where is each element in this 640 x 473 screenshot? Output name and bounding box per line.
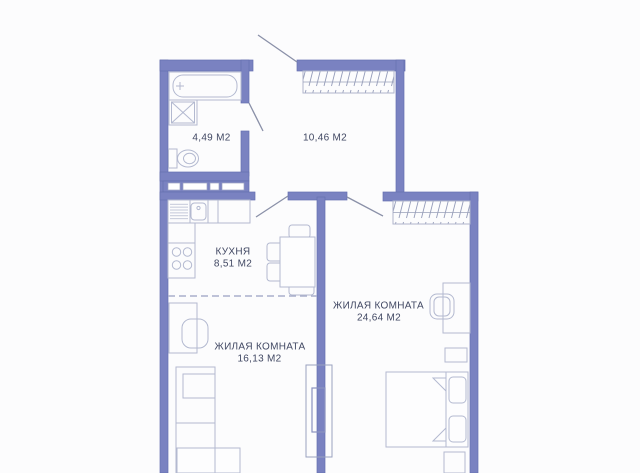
desk-chair-seat (434, 297, 450, 316)
bathroom-area-label: 4,49 М2 (192, 133, 230, 144)
sofa-cushion (183, 374, 215, 398)
wall-right-outer (470, 192, 478, 473)
duct-box (183, 183, 207, 190)
kitchen-name-label: КУХНЯ (216, 247, 251, 258)
wall-left-outer (160, 60, 168, 473)
kitchen-table (280, 237, 315, 287)
wall-hallway-top (297, 60, 405, 71)
living-room-1-area-label: 16,13 М2 (237, 354, 281, 365)
desk (169, 303, 197, 353)
sink-drain (197, 206, 200, 209)
living-room-2-area-label: 24,64 М2 (357, 313, 401, 324)
wall-hallway-right (396, 60, 404, 197)
entry-door-line (258, 35, 297, 62)
wall-bathroom-bottom (160, 172, 249, 181)
floor-plan: 4,49 М2 10,46 М2 КУХНЯ 8,51 М2 ЖИЛАЯ КОМ… (0, 0, 640, 473)
duct-box (210, 183, 219, 190)
bed (386, 372, 468, 447)
living-room-2-furniture (386, 201, 470, 473)
living-room-2-name-label: ЖИЛАЯ КОМНАТА (333, 301, 424, 312)
bathroom-fixtures (169, 72, 242, 168)
duct-box (222, 183, 244, 190)
kitchen-table-group (267, 225, 315, 295)
chair (289, 225, 310, 238)
living-room-1-name-label: ЖИЛАЯ КОМНАТА (215, 342, 306, 353)
living-room-1-furniture (169, 303, 332, 473)
desk (443, 283, 470, 333)
hallway-wardrobe (303, 71, 394, 93)
wall-kitchen-top (160, 192, 255, 200)
floor-plan-drawing: 4,49 М2 10,46 М2 КУХНЯ 8,51 М2 ЖИЛАЯ КОМ… (0, 0, 640, 473)
kitchen-opening-line (256, 196, 288, 217)
dish-rack (170, 202, 188, 221)
stove-burners (172, 248, 191, 269)
washing-machine (169, 100, 197, 125)
wall-room2-top (383, 192, 478, 201)
wall-bathroom-top (160, 60, 253, 71)
wall-bathroom-right-upper (241, 60, 249, 103)
sink (191, 203, 206, 220)
bathroom-door-line (249, 103, 263, 131)
duct-box (168, 183, 180, 190)
toilet (169, 149, 199, 168)
wardrobe (393, 201, 470, 224)
sofa-seat (177, 448, 240, 473)
room2-opening-line (347, 197, 383, 216)
nightstand (445, 348, 467, 362)
kitchen-area-label: 8,51 М2 (214, 259, 252, 270)
hallway-area-label: 10,46 М2 (303, 133, 347, 144)
desk-chair (182, 319, 208, 348)
wall-bathroom-right-lower (241, 131, 249, 176)
nightstand (444, 452, 465, 473)
